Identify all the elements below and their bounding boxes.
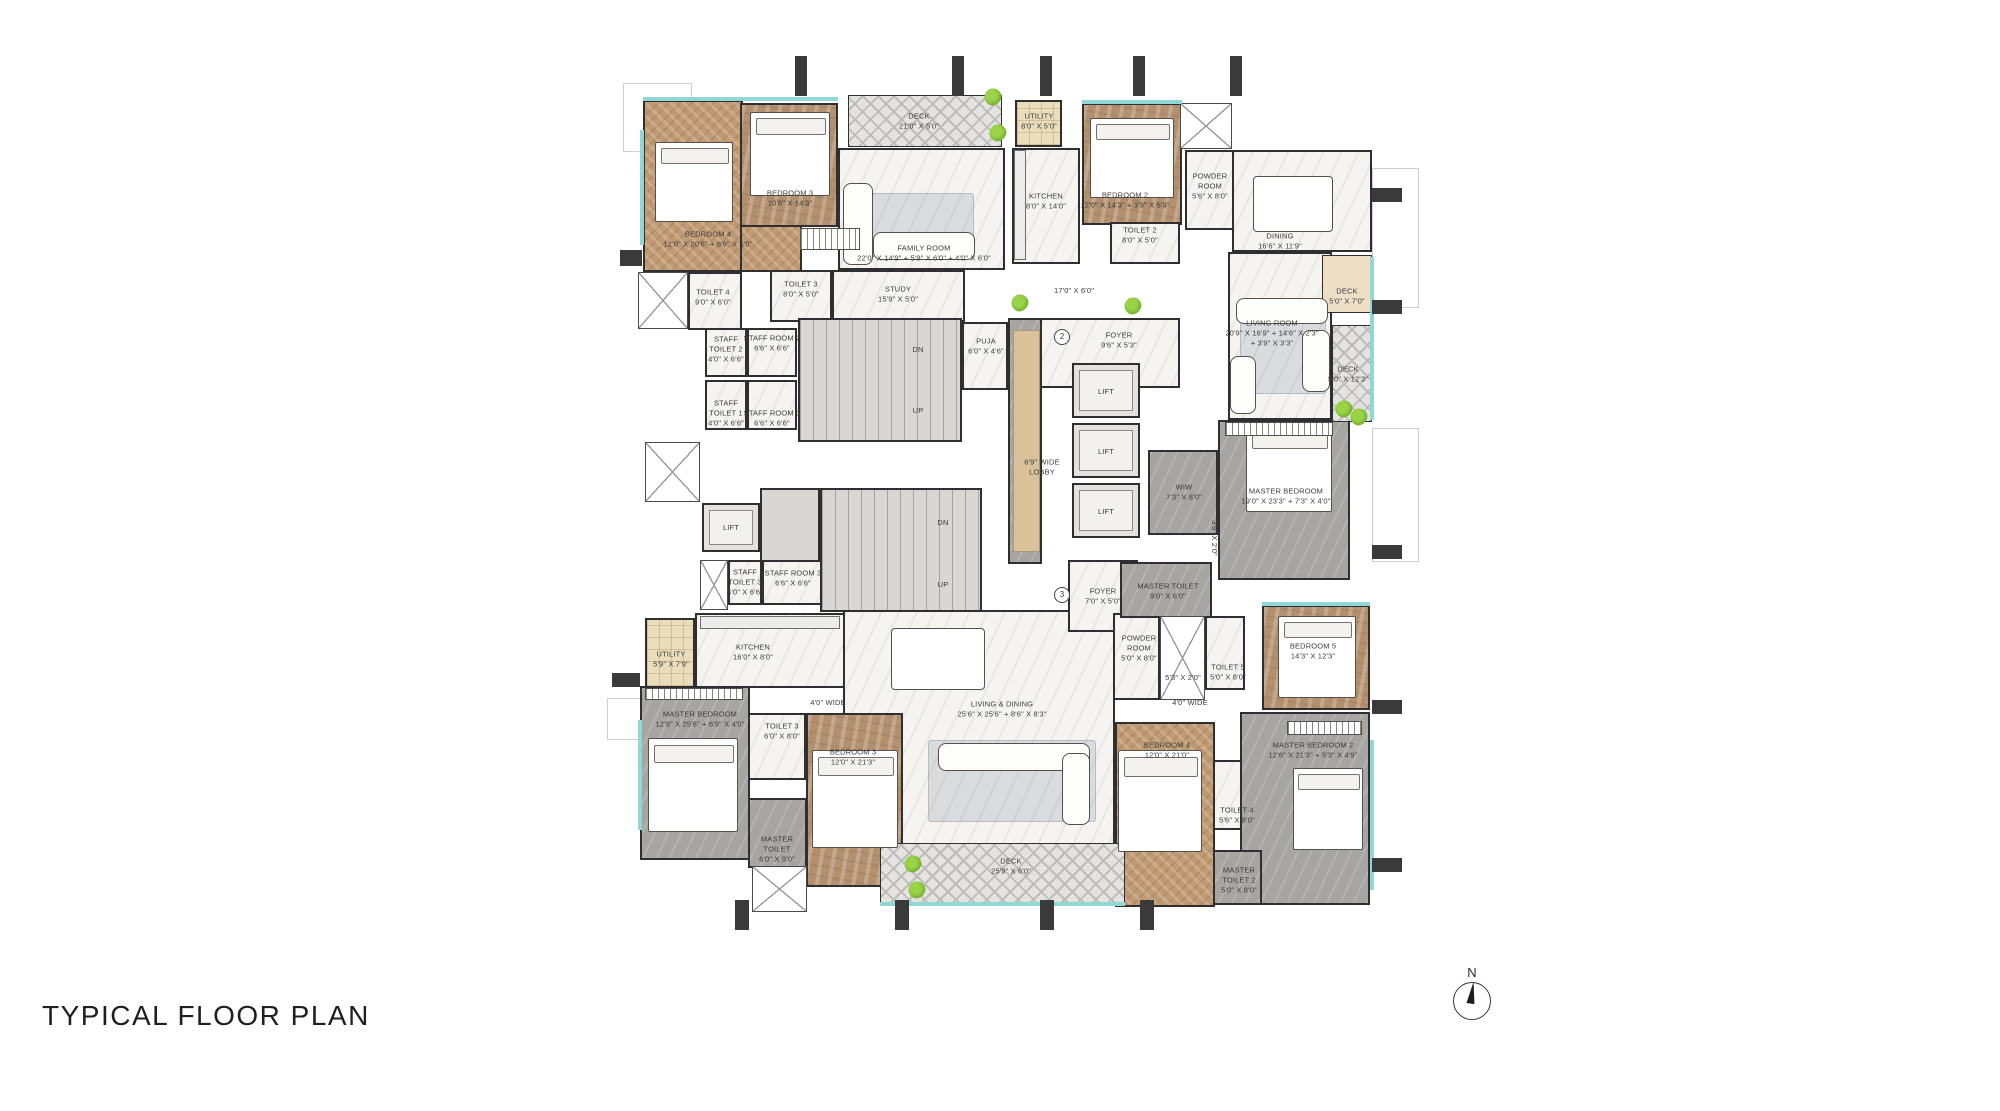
win-top-left xyxy=(643,97,838,101)
column-stub xyxy=(1372,858,1402,872)
wr-furniture xyxy=(645,688,743,700)
label-line: UP xyxy=(913,406,924,416)
shaft-ur xyxy=(1180,103,1232,149)
north-indicator: N xyxy=(1432,965,1512,1055)
label-line: FOYER xyxy=(1101,330,1137,340)
label-utility-ur: UTILITY8'0" X 5'0" xyxy=(1021,111,1057,131)
label-line: 12'0" X 14'3" + 3'9" X 5'3" xyxy=(1080,200,1169,210)
roof-outline xyxy=(1372,428,1419,562)
label-line: DECK xyxy=(899,111,939,121)
label-master-bedroom-r: MASTER BEDROOM19'0" X 23'3" + 7'3" X 4'0… xyxy=(1241,486,1330,506)
label-line: 25'6" X 25'6" + 8'6" X 8'3" xyxy=(957,709,1046,719)
label-line: STAFF xyxy=(727,567,763,577)
label-line: 2 xyxy=(1060,332,1065,342)
label-line: DECK xyxy=(1329,286,1365,296)
plant-icon xyxy=(990,125,1007,142)
column-stub xyxy=(1372,700,1402,714)
label-line: 10'6" X 14'3" xyxy=(767,198,813,208)
shaft-ul xyxy=(638,272,688,329)
sofa-furniture xyxy=(1230,356,1256,414)
label-utility-ll: UTILITY5'9" X 7'9" xyxy=(653,649,689,669)
label-line: TOILET 3 xyxy=(764,721,800,731)
label-line: BEDROOM 3 xyxy=(767,188,813,198)
label-line: 8'0" X 5'0" xyxy=(1021,121,1057,131)
label-line: 8'0" X 5'0" xyxy=(1122,235,1158,245)
plant-icon xyxy=(1125,298,1142,315)
label-deck-top: DECK21'0" X 5'0" xyxy=(899,111,939,131)
label-study: STUDY15'9" X 5'0" xyxy=(878,284,918,304)
label-puja: PUJA6'0" X 4'6" xyxy=(968,336,1004,356)
label-staff-toilet1: STAFFTOILET 14'0" X 6'6" xyxy=(708,398,744,427)
label-line: 5'0" X 8'0" xyxy=(1221,885,1257,895)
label-line: PUJA xyxy=(968,336,1004,346)
win-br5 xyxy=(1262,602,1370,606)
label-up-lower: UP xyxy=(938,580,949,590)
label-bedroom4-ul: BEDROOM 412'0" X 20'6" + 6'6" X 6'0" xyxy=(663,229,752,249)
label-line: 25'9" X 6'0" xyxy=(991,866,1031,876)
label-line: TOILET 2 xyxy=(708,344,744,354)
label-line: 16'6" X 11'9" xyxy=(1258,241,1302,251)
label-line: 12'0" X 20'6" + 6'6" X 6'0" xyxy=(663,239,752,249)
label-line: 9'0" X 6'0" xyxy=(1137,591,1198,601)
label-line: MASTER BEDROOM xyxy=(1241,486,1330,496)
label-passage-17: 17'0" X 6'0" xyxy=(1054,286,1094,296)
label-line: LOBBY xyxy=(1024,467,1059,477)
label-dn-lower: DN xyxy=(937,518,948,528)
label-line: 12'9" X 25'6" + 6'9" X 4'0" xyxy=(655,719,744,729)
label-line: WIW xyxy=(1166,482,1202,492)
label-wiw: WIW7'3" X 8'0" xyxy=(1166,482,1202,502)
label-lift-2: LIFT xyxy=(1098,447,1114,457)
column-stub xyxy=(1040,900,1054,930)
label-line: POWDER xyxy=(1192,171,1228,181)
label-dining: DINING16'6" X 11'9" xyxy=(1258,231,1302,251)
label-line: BEDROOM 2 xyxy=(1080,190,1169,200)
label-living-dining-ll: LIVING & DINING25'6" X 25'6" + 8'6" X 8'… xyxy=(957,699,1046,719)
label-toilet4-ll: TOILET 45'6" X 8'0" xyxy=(1219,805,1255,825)
label-bedroom3-ul: BEDROOM 310'6" X 14'3" xyxy=(767,188,813,208)
column-stub xyxy=(620,250,642,266)
label-master-toilet2: MASTERTOILET 25'0" X 8'0" xyxy=(1221,865,1257,894)
label-line: 6'6" X 6'6" xyxy=(765,578,822,588)
label-line: MASTER BEDROOM 2 xyxy=(1268,740,1357,750)
label-bedroom3-ll: BEDROOM 312'0" X 21'3" xyxy=(830,747,876,767)
label-line: 4'0" X 6'6" xyxy=(708,354,744,364)
label-line: TOILET 5 xyxy=(1210,662,1246,672)
label-line: LIVING & DINING xyxy=(957,699,1046,709)
label-line: 5'0" X 12'3" xyxy=(1328,374,1368,384)
win-bottom xyxy=(880,902,1125,906)
label-lift-3: LIFT xyxy=(1098,507,1114,517)
label-line: 6'0" X 9'0" xyxy=(759,854,795,864)
wr-furniture xyxy=(1225,422,1333,436)
column-stub xyxy=(795,56,807,96)
label-bedroom2: BEDROOM 212'0" X 14'3" + 3'9" X 5'3" xyxy=(1080,190,1169,210)
label-line: TOILET xyxy=(759,844,795,854)
floor-plan-sheet: BEDROOM 412'0" X 20'6" + 6'6" X 6'0"BEDR… xyxy=(0,0,2000,1111)
label-line: MASTER xyxy=(759,834,795,844)
marker-2: 2 xyxy=(1054,329,1070,345)
label-line: DECK xyxy=(991,856,1031,866)
label-kitchen-ll: KITCHEN16'0" X 8'0" xyxy=(733,642,773,662)
label-toilet2: TOILET 28'0" X 5'0" xyxy=(1122,225,1158,245)
label-line: 12'0" X 21'3" xyxy=(830,757,876,767)
label-line: MASTER BEDROOM xyxy=(655,709,744,719)
floor-plan-canvas: BEDROOM 412'0" X 20'6" + 6'6" X 6'0"BEDR… xyxy=(0,0,2000,1111)
label-line: 5'0" X 8'0" xyxy=(1121,653,1157,663)
label-living-ur: LIVING ROOM20'9" X 16'9" + 14'6" X 2'3"+… xyxy=(1225,318,1318,347)
label-lobby: 6'9" WIDELOBBY xyxy=(1024,457,1059,477)
plant-icon xyxy=(1012,295,1029,312)
label-foyer-upper: FOYER9'6" X 5'3" xyxy=(1101,330,1137,350)
label-staff-room3: STAFF ROOM 36'6" X 6'6" xyxy=(765,568,822,588)
label-line: FAMILY ROOM xyxy=(857,243,991,253)
label-line: LIFT xyxy=(1098,447,1114,457)
label-line: 6'6" X 6'6" xyxy=(744,343,801,353)
label-bedroom5: BEDROOM 514'3" X 12'3" xyxy=(1290,641,1336,661)
label-line: 17'0" X 6'0" xyxy=(1054,286,1094,296)
shaft-lr xyxy=(1160,616,1205,700)
label-line: FOYER xyxy=(1085,586,1121,596)
label-line: ROOM xyxy=(1121,643,1157,653)
label-line: TOILET 3 xyxy=(727,577,763,587)
bed-furniture xyxy=(1118,750,1202,852)
label-line: KITCHEN xyxy=(1026,191,1066,201)
table-furniture xyxy=(891,628,985,690)
label-line: LIFT xyxy=(723,523,739,533)
sofa-furniture xyxy=(1062,753,1090,825)
label-line: 21'0" X 5'0" xyxy=(899,121,939,131)
label-line: STAFF ROOM 2 xyxy=(744,333,801,343)
shaft-lb xyxy=(752,866,807,912)
stair-upper xyxy=(798,318,962,442)
label-line: 5'6" X 8'0" xyxy=(1219,815,1255,825)
bed-furniture xyxy=(1293,768,1363,850)
wr-furniture xyxy=(1287,721,1362,735)
label-line: STAFF ROOM 3 xyxy=(765,568,822,578)
column-stub xyxy=(952,56,964,96)
vestibule xyxy=(760,488,820,562)
north-label: N xyxy=(1432,965,1512,980)
label-line: 16'0" X 8'0" xyxy=(733,652,773,662)
label-line: 5'6" X 8'0" xyxy=(1192,191,1228,201)
north-needle-icon xyxy=(1467,981,1478,1004)
label-line: 12'0" X 21'0" xyxy=(1144,750,1190,760)
label-staff-room2: STAFF ROOM 26'6" X 6'6" xyxy=(744,333,801,353)
label-line: STAFF xyxy=(708,398,744,408)
lobby-runner xyxy=(1013,330,1040,552)
label-line: DECK xyxy=(1328,364,1368,374)
label-line: LIVING ROOM xyxy=(1225,318,1318,328)
label-toilet5: TOILET 55'0" X 8'0" xyxy=(1210,662,1246,682)
table-furniture xyxy=(1253,176,1333,232)
label-deck-5x123: DECK5'0" X 12'3" xyxy=(1328,364,1368,384)
label-line: 15'9" X 5'0" xyxy=(878,294,918,304)
win-right xyxy=(1370,257,1374,420)
label-line: 22'0" X 14'9" + 5'9" X 6'0" + 4'0" X 6'0… xyxy=(857,253,991,263)
label-line: UP xyxy=(938,580,949,590)
label-line: 3'9" X 2'0" xyxy=(1209,520,1219,556)
label-line: TOILET 1 xyxy=(708,408,744,418)
label-line: 5'0" X 7'0" xyxy=(1329,296,1365,306)
label-staff-room1: STAFF ROOM 16'6" X 6'6" xyxy=(744,408,801,428)
label-passage-53: 5'3" X 2'0" xyxy=(1165,673,1201,683)
label-line: STAFF ROOM 1 xyxy=(744,408,801,418)
column-stub xyxy=(1230,56,1242,96)
label-line: TOILET 2 xyxy=(1221,875,1257,885)
label-bedroom4-ll: BEDROOM 412'0" X 21'0" xyxy=(1144,740,1190,760)
label-line: 4'0" X 6'6" xyxy=(727,587,763,597)
wr-furniture xyxy=(800,228,860,250)
label-line: 7'0" X 5'0" xyxy=(1085,596,1121,606)
label-line: 9'6" X 5'3" xyxy=(1101,340,1137,350)
label-passage-40w-l: 4'0" WIDE xyxy=(810,698,845,708)
label-master-toilet-ll: MASTERTOILET6'0" X 9'0" xyxy=(759,834,795,863)
label-line: DINING xyxy=(1258,231,1302,241)
north-compass-icon xyxy=(1453,982,1491,1020)
win-top-right xyxy=(1082,100,1182,104)
label-line: KITCHEN xyxy=(733,642,773,652)
label-line: MASTER TOILET xyxy=(1137,581,1198,591)
column-stub xyxy=(1133,56,1145,96)
label-line: LIFT xyxy=(1098,507,1114,517)
label-powder-ur: POWDERROOM5'6" X 8'0" xyxy=(1192,171,1228,200)
label-line: 6'9" WIDE xyxy=(1024,457,1059,467)
column-stub xyxy=(1040,56,1052,96)
label-line: 4'0" WIDE xyxy=(810,698,845,708)
label-kitchen-ur: KITCHEN8'0" X 14'0" xyxy=(1026,191,1066,211)
label-line: ROOM xyxy=(1192,181,1228,191)
label-line: 14'3" X 12'3" xyxy=(1290,651,1336,661)
plant-icon xyxy=(905,856,922,873)
label-line: BEDROOM 3 xyxy=(830,747,876,757)
label-line: 7'3" X 8'0" xyxy=(1166,492,1202,502)
plant-icon xyxy=(1351,409,1368,426)
label-toilet3-ll: TOILET 36'0" X 8'0" xyxy=(764,721,800,741)
label-master-toilet-ur: MASTER TOILET9'0" X 6'0" xyxy=(1137,581,1198,601)
label-line: 5'3" X 2'0" xyxy=(1165,673,1201,683)
label-line: LIFT xyxy=(1098,387,1114,397)
shaft-mid xyxy=(645,442,700,502)
label-line: TOILET 3 xyxy=(783,279,819,289)
label-passage-40w-r: 4'0" WIDE xyxy=(1172,698,1207,708)
label-master-bedroom2: MASTER BEDROOM 212'6" X 21'3" + 5'3" X 4… xyxy=(1268,740,1357,760)
puja xyxy=(962,322,1008,390)
label-powder-ll: POWDERROOM5'0" X 8'0" xyxy=(1121,633,1157,662)
stair-lower xyxy=(820,488,982,612)
label-line: 6'0" X 8'0" xyxy=(764,731,800,741)
label-master-bedroom-ll: MASTER BEDROOM12'9" X 25'6" + 6'9" X 4'0… xyxy=(655,709,744,729)
label-staff-toilet2: STAFFTOILET 24'0" X 6'6" xyxy=(708,334,744,363)
label-line: 9'0" X 6'0" xyxy=(695,297,731,307)
page-title: TYPICAL FLOOR PLAN xyxy=(42,1000,370,1032)
label-line: BEDROOM 4 xyxy=(663,229,752,239)
bed-furniture xyxy=(1090,118,1174,198)
label-line: DN xyxy=(912,345,923,355)
label-foyer-lower: FOYER7'0" X 5'0" xyxy=(1085,586,1121,606)
plant-icon xyxy=(985,89,1002,106)
column-stub xyxy=(895,900,909,930)
column-stub xyxy=(735,900,749,930)
label-line: 3 xyxy=(1060,590,1065,600)
win-left-up xyxy=(640,130,644,245)
win-left-low xyxy=(638,720,642,830)
column-stub xyxy=(1372,545,1402,559)
bed-furniture xyxy=(750,112,830,196)
label-lift-ll: LIFT xyxy=(723,523,739,533)
label-line: UTILITY xyxy=(653,649,689,659)
label-line: 5'0" X 8'0" xyxy=(1210,672,1246,682)
label-line: POWDER xyxy=(1121,633,1157,643)
label-line: 6'0" X 4'6" xyxy=(968,346,1004,356)
counter-furniture xyxy=(1014,150,1026,260)
label-line: 8'0" X 5'0" xyxy=(783,289,819,299)
counter-furniture xyxy=(700,616,840,629)
label-passage-39: 3'9" X 2'0" xyxy=(1209,520,1219,556)
column-stub xyxy=(612,673,640,687)
label-line: STUDY xyxy=(878,284,918,294)
column-stub xyxy=(1372,300,1402,314)
shaft-stf3 xyxy=(700,560,728,610)
label-toilet3-ul: TOILET 38'0" X 5'0" xyxy=(783,279,819,299)
label-line: 8'0" X 14'0" xyxy=(1026,201,1066,211)
label-lift-1: LIFT xyxy=(1098,387,1114,397)
label-up-upper: UP xyxy=(913,406,924,416)
label-line: TOILET 4 xyxy=(1219,805,1255,815)
column-stub xyxy=(1372,188,1402,202)
label-line: UTILITY xyxy=(1021,111,1057,121)
label-line: BEDROOM 4 xyxy=(1144,740,1190,750)
label-line: TOILET 4 xyxy=(695,287,731,297)
label-line: STAFF xyxy=(708,334,744,344)
label-line: DN xyxy=(937,518,948,528)
label-deck-5x7: DECK5'0" X 7'0" xyxy=(1329,286,1365,306)
label-line: 6'6" X 6'6" xyxy=(744,418,801,428)
label-line: 4'0" WIDE xyxy=(1172,698,1207,708)
label-line: BEDROOM 5 xyxy=(1290,641,1336,651)
marker-3: 3 xyxy=(1054,587,1070,603)
label-line: TOILET 2 xyxy=(1122,225,1158,235)
label-toilet4-ul: TOILET 49'0" X 6'0" xyxy=(695,287,731,307)
label-line: 19'0" X 23'3" + 7'3" X 4'0" xyxy=(1241,496,1330,506)
label-line: MASTER xyxy=(1221,865,1257,875)
label-line: + 3'9" X 3'3" xyxy=(1225,338,1318,348)
bed-furniture xyxy=(648,738,738,832)
label-family-room: FAMILY ROOM22'0" X 14'9" + 5'9" X 6'0" +… xyxy=(857,243,991,263)
bed-furniture xyxy=(655,142,733,222)
label-dn-upper: DN xyxy=(912,345,923,355)
plant-icon xyxy=(909,882,926,899)
label-line: 5'9" X 7'9" xyxy=(653,659,689,669)
label-line: 20'9" X 16'9" + 14'6" X 2'3" xyxy=(1225,328,1318,338)
label-line: 4'0" X 6'6" xyxy=(708,418,744,428)
label-deck-bottom: DECK25'9" X 6'0" xyxy=(991,856,1031,876)
label-line: 12'6" X 21'3" + 5'3" X 4'9" xyxy=(1268,750,1357,760)
column-stub xyxy=(1140,900,1154,930)
label-staff-toilet3: STAFFTOILET 34'0" X 6'6" xyxy=(727,567,763,596)
